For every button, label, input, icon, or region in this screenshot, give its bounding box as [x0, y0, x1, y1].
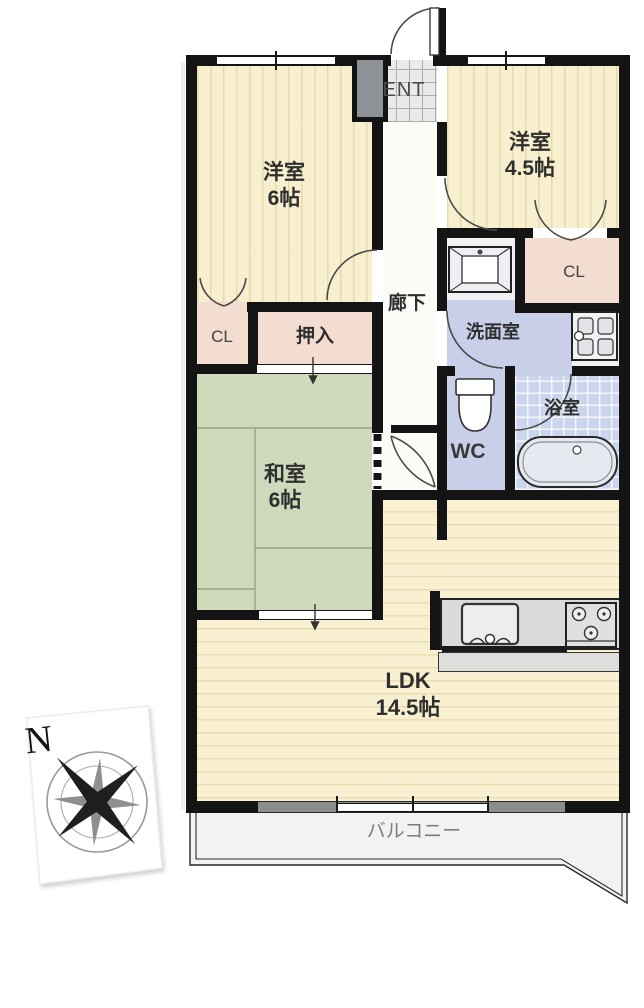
wall-corridor-right-1	[437, 122, 447, 176]
window-top-east	[468, 55, 545, 66]
vanity-nook	[447, 238, 515, 302]
label-corridor: 廊下	[379, 292, 435, 316]
balcony-window-glass	[337, 803, 488, 812]
compass-north-label: N	[23, 718, 55, 763]
sliding-door-oshiire	[257, 364, 372, 374]
washer-nook	[572, 313, 619, 366]
label-ldk: LDK14.5帖	[348, 666, 468, 724]
wall-closet-right-left	[515, 238, 525, 313]
label-wc: WC	[442, 439, 494, 465]
wall-right	[619, 55, 630, 813]
scan-shadow	[181, 62, 185, 810]
label-washroom: 洗面室	[447, 321, 539, 345]
wall-top-c	[446, 55, 468, 66]
wall-vestibule-top	[391, 425, 440, 433]
label-western6: 洋室6帖	[224, 158, 344, 214]
wall-corridor-right-2	[437, 228, 447, 311]
balcony-window	[258, 801, 565, 813]
wall-washroom-bottom-b	[572, 366, 630, 376]
label-western45: 洋室4.5帖	[470, 128, 590, 184]
label-entrance: ENT	[376, 78, 432, 102]
kitchen-counter	[440, 598, 623, 650]
label-bathroom: 浴室	[532, 397, 592, 421]
wall-washroom-bottom-a	[437, 366, 455, 376]
wall-left	[186, 55, 197, 813]
wall-corridor-left-1	[372, 122, 383, 250]
label-balcony: バルコニー	[364, 820, 464, 844]
wall-corridor-left-2	[372, 312, 383, 433]
floorplan-image: N 洋室6帖 洋室4.5帖 和室6帖 LDK14.5帖 ENT 廊下 CL 押入…	[0, 0, 644, 1008]
wall-wc-bath-bottom	[381, 490, 630, 500]
room-bathroom	[515, 376, 619, 490]
wall-closet-left-bottom	[197, 364, 257, 374]
wall-bottom-a	[186, 801, 258, 813]
window-top-west	[217, 55, 335, 66]
wall-corridor-left-3	[372, 490, 383, 620]
wall-top-d	[545, 55, 630, 66]
compass-rose-icon: N	[18, 706, 176, 884]
label-japanese6: 和室6帖	[225, 460, 345, 516]
wall-closet-right-bottom	[515, 303, 630, 313]
wall-bottom-b	[565, 801, 630, 813]
wall-japanese-bottom	[197, 610, 259, 620]
entrance-door-arc	[391, 8, 438, 54]
label-closet-left: CL	[196, 325, 248, 349]
wall-entrance-stub	[433, 8, 446, 66]
label-closet-right: CL	[548, 260, 600, 284]
room-wc	[447, 376, 505, 492]
wall-under-western45-a	[437, 228, 533, 238]
wall-wc-bath-divider	[505, 366, 515, 492]
wall-kitchen-cap	[430, 591, 440, 650]
label-oshiire: 押入	[285, 325, 345, 349]
sliding-door-japanese-ldk	[259, 610, 372, 620]
wall-under-western6	[247, 302, 383, 312]
wall-under-western45-b	[607, 228, 630, 238]
